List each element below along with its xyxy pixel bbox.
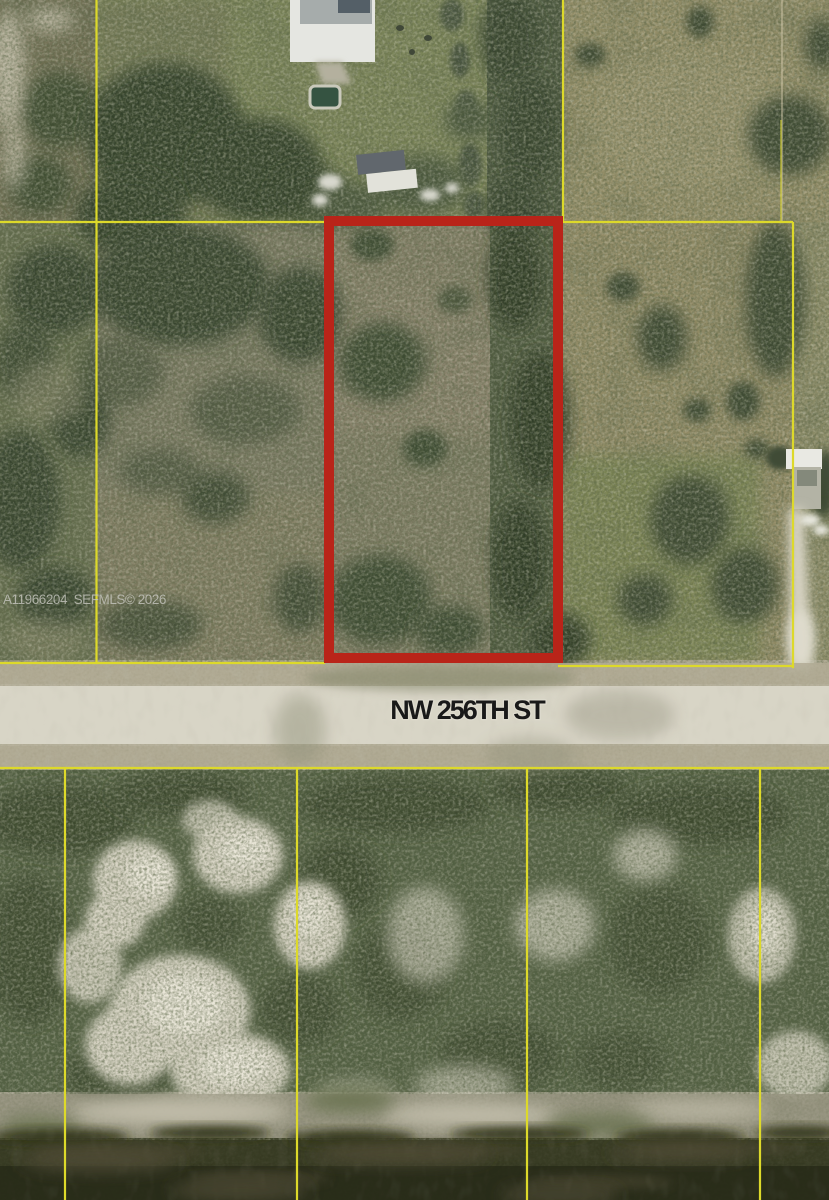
svg-text:NW 256TH ST: NW 256TH ST	[390, 695, 546, 725]
svg-text:A11966204 SEFMLS© 2026: A11966204 SEFMLS© 2026	[3, 592, 166, 607]
